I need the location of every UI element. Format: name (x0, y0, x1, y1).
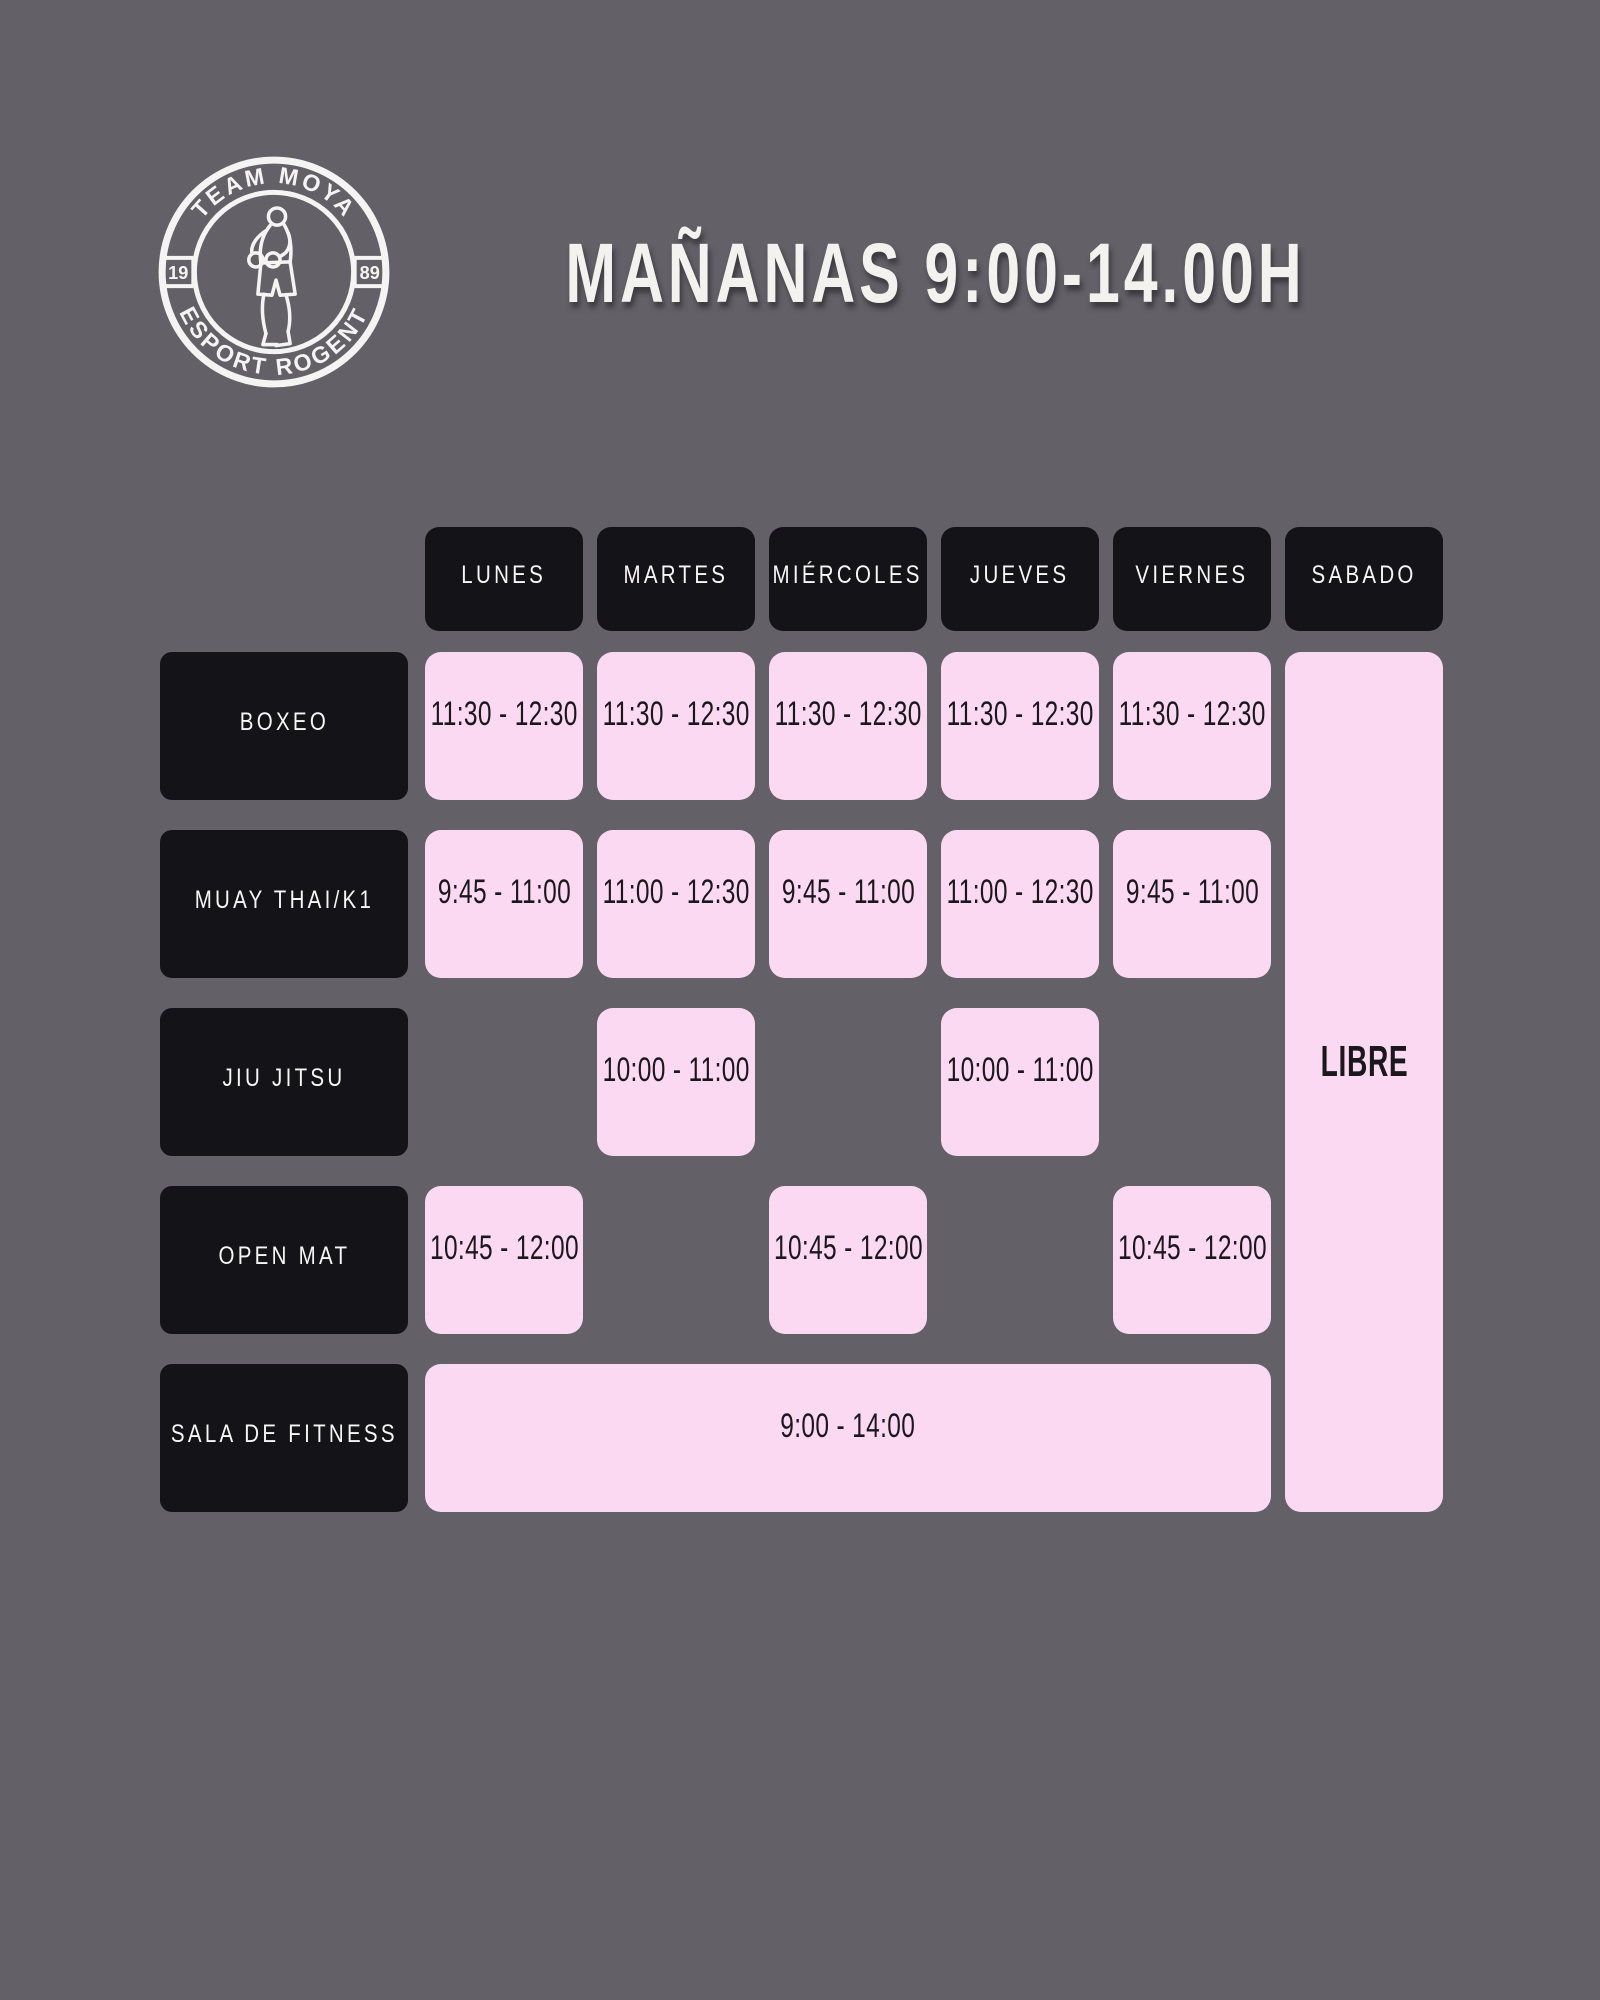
row-label-jiu-jitsu: JIU JITSU (160, 1008, 408, 1156)
logo-year-right: 89 (360, 263, 380, 283)
row-label-sala-de-fitness: SALA DE FITNESS (160, 1364, 408, 1512)
logo-year-left: 19 (168, 263, 188, 283)
schedule-cell-boxeo-miercoles: 11:30 - 12:30 (769, 652, 927, 800)
day-header-martes: MARTES (597, 527, 755, 631)
schedule-cell-muay-lunes: 9:45 - 11:00 (425, 830, 583, 978)
schedule-cell-openmat-miercoles: 10:45 - 12:00 (769, 1186, 927, 1334)
page-title-wrap: MAÑANAS 9:00-14.00H (540, 218, 1330, 328)
schedule-cell-boxeo-viernes: 11:30 - 12:30 (1113, 652, 1271, 800)
schedule-cell-muay-jueves: 11:00 - 12:30 (941, 830, 1099, 978)
schedule-grid: LUNES MARTES MIÉRCOLES JUEVES VIERNES SA… (160, 527, 1443, 1512)
schedule-cell-muay-viernes: 9:45 - 11:00 (1113, 830, 1271, 978)
schedule-cell-openmat-viernes: 10:45 - 12:00 (1113, 1186, 1271, 1334)
page-title: MAÑANAS 9:00-14.00H (565, 224, 1305, 322)
club-logo: TEAM MOYA ESPORT ROGENT 19 89 (148, 146, 400, 398)
schedule-cell-boxeo-jueves: 11:30 - 12:30 (941, 652, 1099, 800)
day-header-lunes: LUNES (425, 527, 583, 631)
day-header-viernes: VIERNES (1113, 527, 1271, 631)
schedule-cell-muay-martes: 11:00 - 12:30 (597, 830, 755, 978)
boxer-icon (249, 208, 295, 346)
day-header-jueves: JUEVES (941, 527, 1099, 631)
schedule-cell-jiujitsu-martes: 10:00 - 11:00 (597, 1008, 755, 1156)
schedule-cell-sabado-libre: LIBRE (1285, 652, 1443, 1512)
schedule-cell-jiujitsu-jueves: 10:00 - 11:00 (941, 1008, 1099, 1156)
club-logo-badge: TEAM MOYA ESPORT ROGENT 19 89 (148, 146, 400, 398)
schedule-cell-openmat-lunes: 10:45 - 12:00 (425, 1186, 583, 1334)
schedule-cell-muay-miercoles: 9:45 - 11:00 (769, 830, 927, 978)
row-label-muay-thai: MUAY THAI/K1 (160, 830, 408, 978)
row-label-boxeo: BOXEO (160, 652, 408, 800)
row-label-open-mat: OPEN MAT (160, 1186, 408, 1334)
day-header-miercoles: MIÉRCOLES (769, 527, 927, 631)
logo-inner-ring (194, 192, 353, 351)
schedule-cell-boxeo-martes: 11:30 - 12:30 (597, 652, 755, 800)
day-header-sabado: SABADO (1285, 527, 1443, 631)
schedule-cell-fitness-merged: 9:00 - 14:00 (425, 1364, 1271, 1512)
schedule-cell-boxeo-lunes: 11:30 - 12:30 (425, 652, 583, 800)
